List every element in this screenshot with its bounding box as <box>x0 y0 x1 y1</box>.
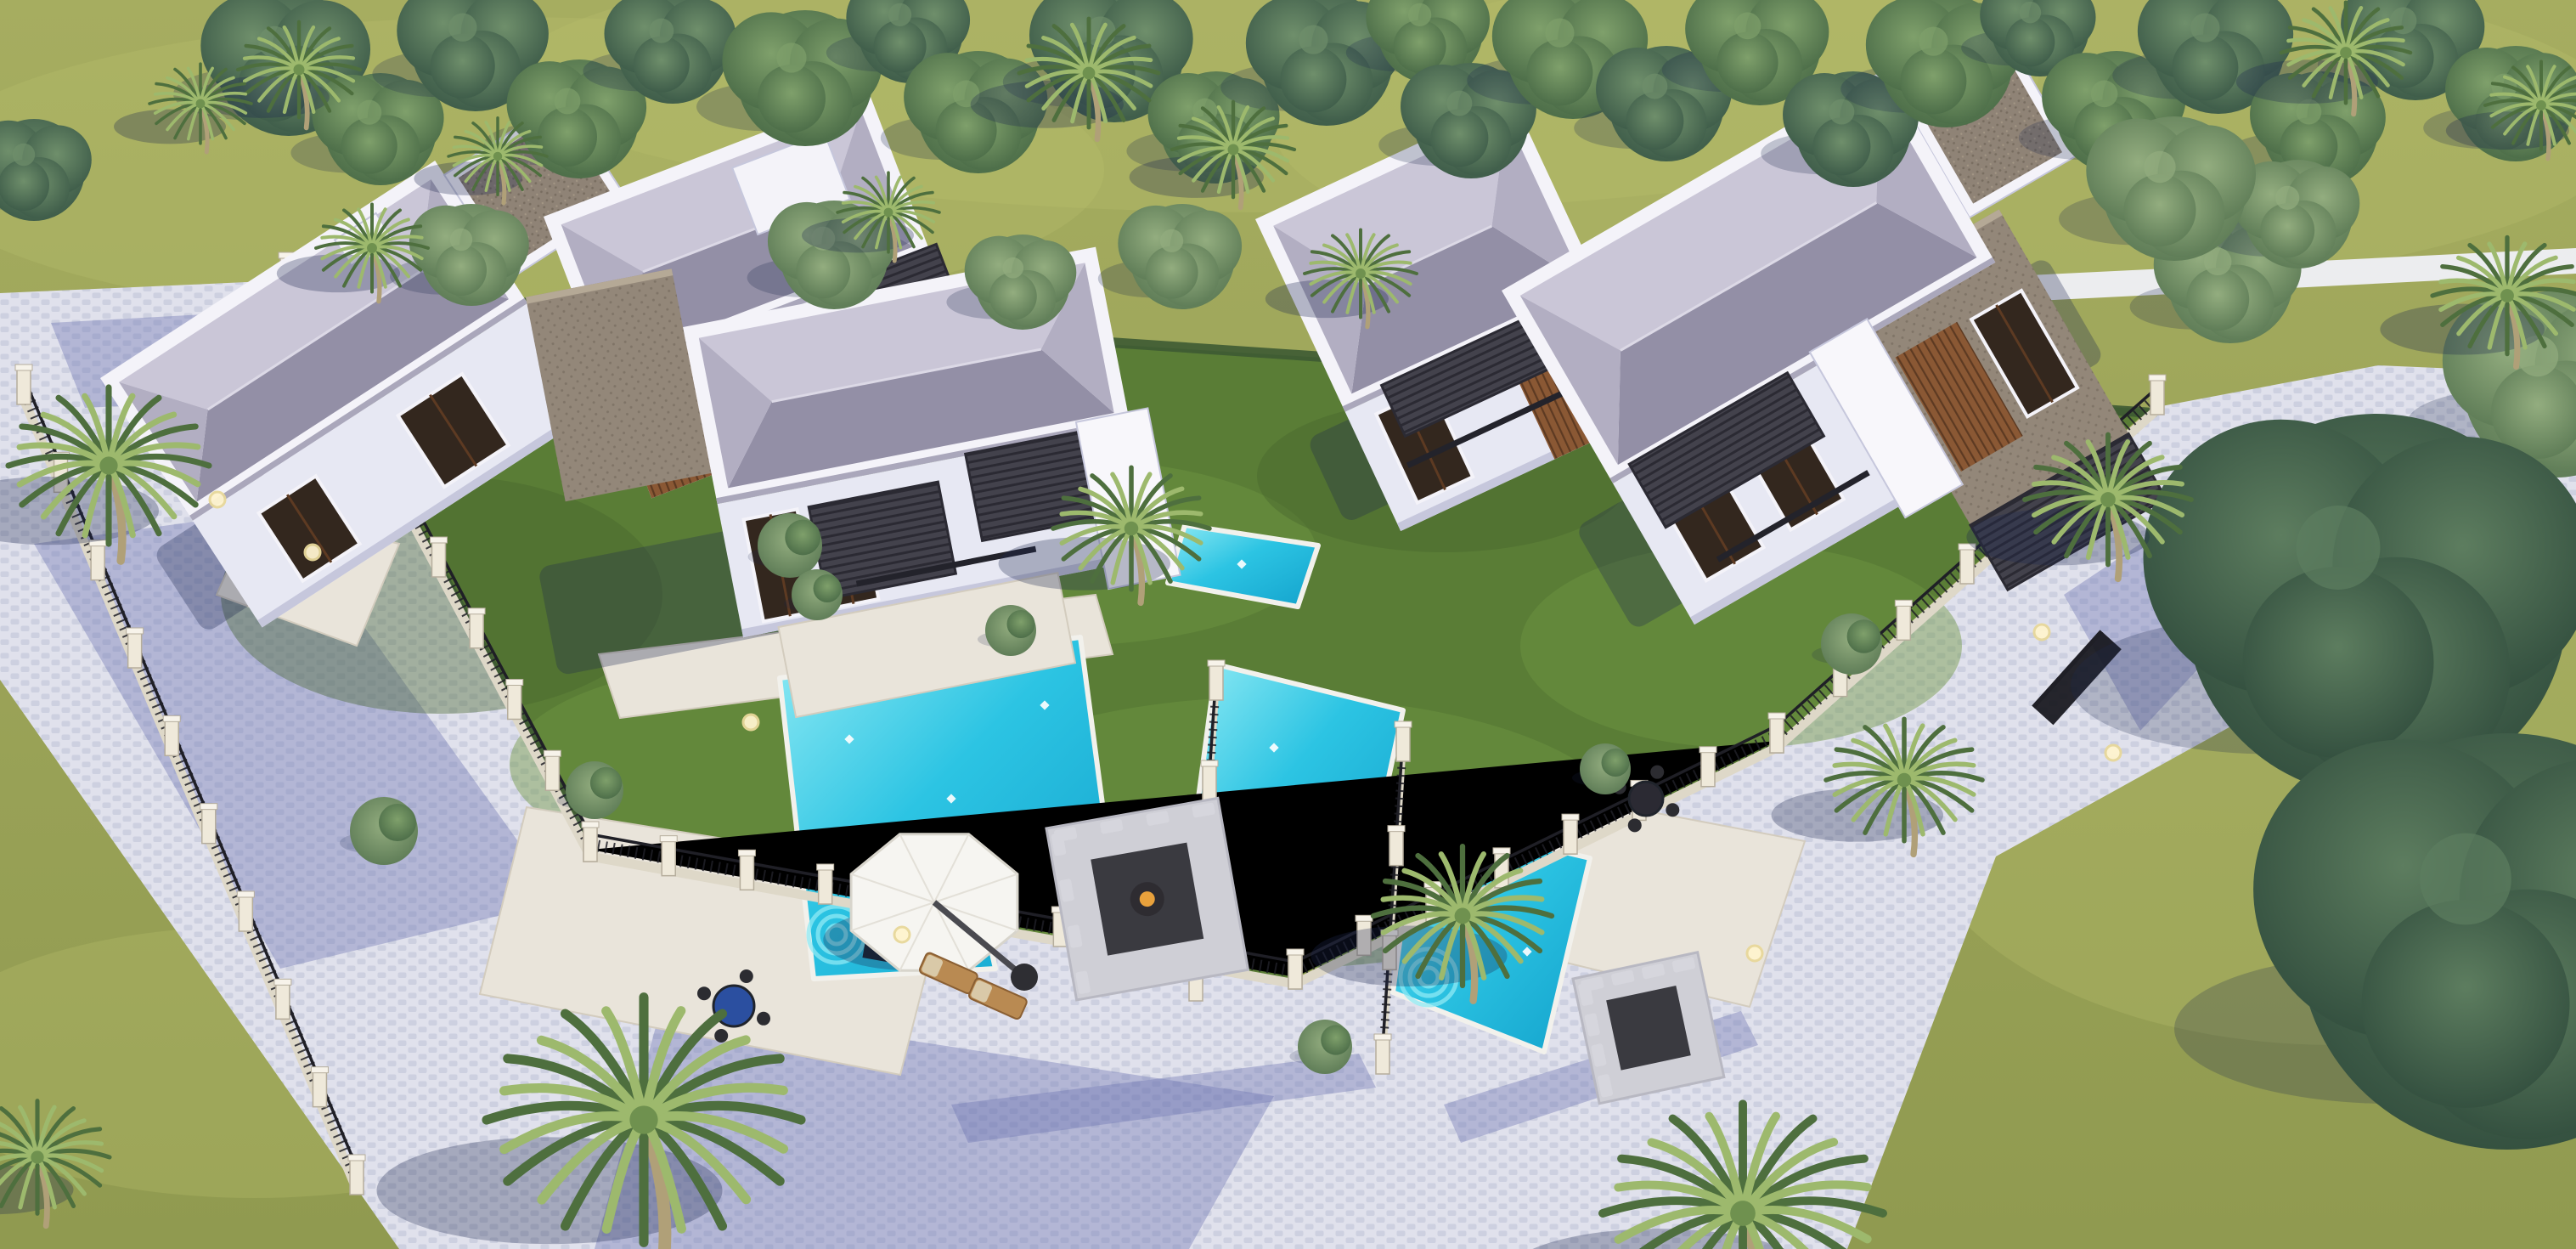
fence-pillar <box>508 684 521 720</box>
pillar-cap <box>274 979 291 985</box>
pillar-cap <box>660 836 677 842</box>
pillar-cap <box>348 1155 365 1161</box>
garden-lamp <box>2034 624 2049 640</box>
fence-pillar <box>1960 548 1974 584</box>
fence-pillar <box>1376 1038 1389 1074</box>
chair <box>740 969 753 983</box>
fence-pillar <box>313 1071 326 1107</box>
fence-pillar <box>740 854 753 890</box>
fence-pillar <box>350 1159 364 1195</box>
fence-pillar <box>662 840 675 876</box>
pillar-cap <box>1374 1034 1391 1040</box>
pillar-cap <box>127 628 144 634</box>
chair <box>1666 803 1679 817</box>
pillar-cap <box>1208 660 1225 666</box>
fence-pillar <box>91 545 104 580</box>
pillar-cap <box>1287 949 1304 955</box>
fence-pillar <box>17 369 31 404</box>
sunken-seating <box>1573 952 1724 1104</box>
fence-pillar <box>202 808 216 844</box>
chair <box>697 986 711 1000</box>
fence-pillar <box>432 541 446 577</box>
pillar-cap <box>1395 721 1412 727</box>
pillar-cap <box>1699 747 1716 753</box>
garden-lamp <box>305 545 320 560</box>
fence-pillar <box>545 754 559 790</box>
pillar-cap <box>237 891 254 897</box>
pillar-cap <box>311 1067 328 1073</box>
pillar-cap <box>582 822 599 828</box>
pillar-cap <box>1388 826 1405 832</box>
fence-pillar <box>819 868 832 904</box>
render-canvas <box>0 0 2576 1249</box>
pillar-cap <box>2149 375 2166 381</box>
pillar-cap <box>1562 814 1579 820</box>
fence-pillar <box>1203 765 1216 800</box>
pillar-cap <box>1493 848 1510 854</box>
pillar-cap <box>506 680 523 686</box>
garden-lamp <box>894 927 910 942</box>
pillar-cap <box>15 365 32 370</box>
fence-pillar <box>1288 953 1302 989</box>
pillar-cap <box>431 537 448 543</box>
fence-pillar <box>1770 717 1784 753</box>
umbrella-base <box>1011 964 1038 991</box>
pillar-cap <box>163 715 180 721</box>
sunken-seating <box>1046 798 1248 999</box>
fence-pillar <box>1389 830 1403 866</box>
fence-pillar <box>470 613 483 648</box>
fence-pillar <box>1396 726 1410 761</box>
architectural-render <box>0 0 2576 1249</box>
pillar-cap <box>738 850 755 856</box>
chair <box>757 1012 770 1026</box>
pillar-cap <box>468 608 485 614</box>
fence-pillar <box>1209 664 1223 700</box>
pillar-cap <box>544 750 561 756</box>
table <box>1629 782 1663 816</box>
fence-pillar <box>1564 818 1577 854</box>
fence-pillar <box>1897 604 1910 640</box>
fence-pillar <box>239 896 252 931</box>
garden-lamp <box>210 492 225 507</box>
pillar-cap <box>200 804 217 810</box>
garden-lamp <box>2105 745 2121 760</box>
pillar-cap <box>1356 915 1373 921</box>
fence-pillar <box>128 632 142 668</box>
fence-pillar <box>165 720 178 755</box>
pillar-cap <box>1895 600 1912 606</box>
fence-pillar <box>1701 751 1715 787</box>
fence-pillar <box>583 826 597 862</box>
pillar-cap <box>1768 713 1785 719</box>
fence-pillar <box>2150 379 2164 415</box>
chair <box>1650 766 1664 779</box>
chair <box>1628 818 1642 832</box>
fence-pillar <box>276 983 290 1019</box>
chair <box>714 1029 728 1043</box>
pillar-cap <box>817 864 834 870</box>
garden-lamp <box>743 715 758 730</box>
garden-lamp <box>1747 946 1762 961</box>
pillar-cap <box>1201 760 1218 766</box>
